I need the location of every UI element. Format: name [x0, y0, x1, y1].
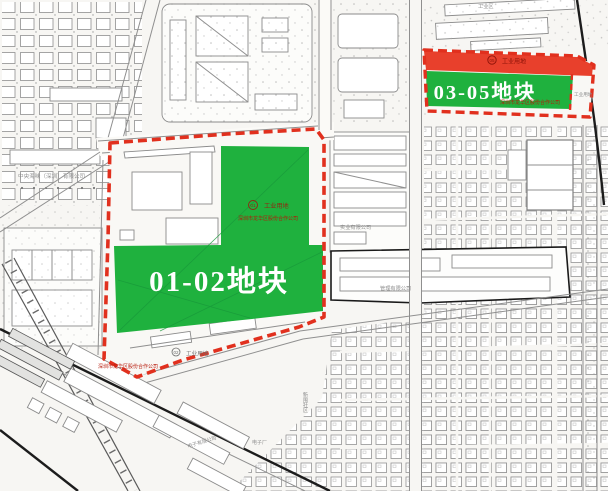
black-outlined-block	[331, 247, 570, 303]
planning-map: 01-02地块 03-05地块 01 工业用地 深圳市龙华区股份合作公司 02 …	[0, 0, 608, 491]
landuse-01-label: 工业用地	[264, 202, 289, 210]
landuse-01-code: 01	[250, 203, 256, 209]
landuse-02-label: 工业用地	[186, 350, 209, 358]
block-company-label: 管理有限公司	[380, 284, 411, 292]
landuse-side-label: 工业用地	[574, 91, 593, 98]
landuse-05-code: 05	[489, 58, 495, 63]
strip-company-label: 实业有限公司	[340, 223, 371, 231]
landuse-01-owner: 深圳市龙华区股份合作公司	[238, 215, 298, 222]
parcel-01-02-title: 01-02地块	[149, 265, 289, 298]
landuse-05-label: 工业用地	[502, 58, 526, 66]
landuse-05-owner: 深圳市龙华区股份合作公司	[500, 99, 560, 106]
village-name-label: 新围社区	[302, 391, 308, 414]
landuse-02-code: 02	[173, 350, 179, 355]
factory-b-label: 电子厂	[252, 439, 267, 446]
map-canvas: 01-02地块 03-05地块 01 工业用地 深圳市龙华区股份合作公司 02 …	[0, 0, 608, 491]
company-left-label: 中央海味（深圳）有限公司	[18, 172, 85, 180]
industrial-zone-label: 工业区	[478, 2, 494, 10]
landuse-02-owner: 深圳市龙华区股份合作公司	[98, 363, 158, 370]
middle-strip-buildings	[330, 132, 412, 252]
